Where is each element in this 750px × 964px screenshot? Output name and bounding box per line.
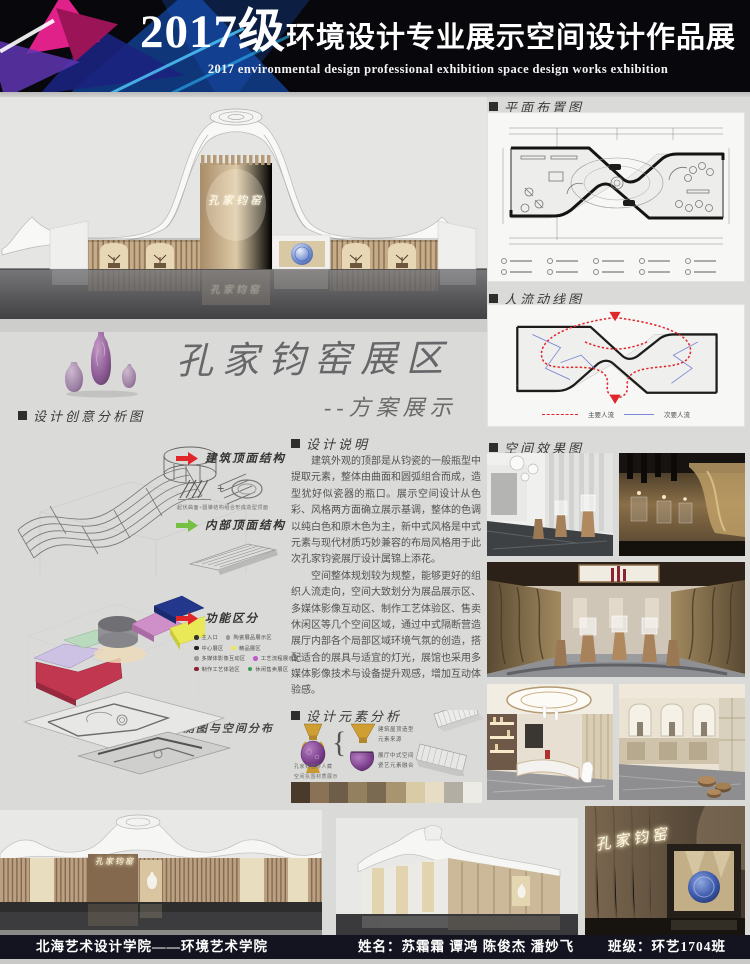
material-swatch (425, 782, 444, 803)
circulation-drawing (497, 310, 735, 404)
facade-sign: 孔家钧窑 (95, 856, 135, 867)
header-banner: 2017级环境设计专业展示空间设计作品展 2017 environmental … (0, 0, 750, 92)
floor-plan-legend (501, 258, 731, 275)
plan-legend-mark (547, 269, 593, 275)
plan-legend-mark (685, 269, 731, 275)
footer-school: 北海艺术设计学院——环境艺术学院 (36, 935, 268, 959)
red-arrow-icon (176, 452, 198, 465)
section-bullet (489, 102, 498, 111)
vases-image (58, 330, 146, 398)
red-arrow-icon (176, 612, 198, 625)
roof-fragment-images (404, 710, 484, 776)
render-main-hall (487, 562, 745, 677)
material-caption: 空间氛围材质展示 (294, 773, 338, 780)
plan-legend-mark (639, 269, 685, 275)
poster-board: 2017级环境设计专业展示空间设计作品展 2017 environmental … (0, 0, 750, 964)
secondary-flow-label: 次要人流 (664, 409, 690, 419)
floor-plan-panel (487, 112, 745, 282)
green-arrow-icon (176, 519, 198, 532)
zone-legend-item: 陶瓷展品展示区 (226, 634, 272, 641)
design-description-heading-text: 设计说明 (306, 434, 370, 453)
vase-neck-piece (348, 722, 378, 746)
zone-legend: 主入口 陶瓷展品展示区 中心展区 精品展区 多媒体影像互动区 工艺流程展示区 制… (194, 634, 300, 673)
plan-legend-mark (639, 258, 685, 264)
analysis-inner-label: 内部顶面结构 (205, 517, 286, 533)
footer-names: 姓名：苏霜霜 谭鸿 陈俊杰 潘妙飞 (358, 935, 574, 959)
project-title: 孔家钧窑展区 (176, 327, 477, 384)
render-gold-room (619, 453, 745, 556)
slat-lines-icon (178, 476, 212, 502)
render-signage-wall: 孔家钧窑 (585, 806, 745, 935)
zone-legend-item: 休闲售卖展区 (248, 666, 288, 673)
header-title-main: 环境设计专业展示空间设计作品展 (286, 14, 736, 56)
main-flow-label: 主要人流 (588, 409, 614, 419)
plan-legend-mark (685, 258, 731, 264)
hero-sign: 孔家钧窑 (208, 194, 264, 207)
roof-formula-graphic: + (178, 476, 265, 502)
plan-legend-mark (501, 269, 547, 275)
footer-bar: 北海艺术设计学院——环境艺术学院 姓名：苏霜霜 谭鸿 陈俊杰 潘妙飞 班级：环艺… (0, 935, 750, 959)
description-paragraph-2: 空间整体规划较为规整，能够更好的组织人流走向，空间大致划分为展品展示区、多媒体影… (291, 569, 481, 700)
section-bullet (489, 443, 498, 452)
material-swatch (329, 782, 348, 803)
material-swatch (348, 782, 367, 803)
ring-icon (229, 477, 265, 501)
material-swatch (367, 782, 386, 803)
plus-glyph: + (217, 481, 224, 497)
main-flow-line-sample (542, 414, 578, 415)
header-title: 2017级环境设计专业展示空间设计作品展 (140, 2, 736, 62)
footer-class: 班级：环艺1704班 (608, 935, 726, 959)
render-facade-corner (336, 818, 578, 935)
zone-legend-item: 主入口 (194, 634, 218, 641)
render-reception (487, 684, 613, 800)
ceiling-slab-graphic (184, 540, 280, 578)
circulation-legend: 主要人流 次要人流 (487, 409, 745, 419)
section-bullet (489, 294, 498, 303)
plan-legend-mark (593, 269, 639, 275)
bottom-strip (0, 959, 750, 964)
render-gallery-room (619, 684, 745, 800)
brace-glyph: { (332, 726, 346, 760)
section-bullet (18, 411, 27, 420)
hero-building-render: 孔家钧窑 孔家钧窑 (0, 97, 487, 332)
secondary-flow-line-sample (624, 414, 654, 415)
zone-legend-item: 多媒体影像互动区 (194, 655, 245, 662)
analysis-item-roof: 建筑顶面结构 (176, 450, 286, 466)
material-swatch (386, 782, 405, 803)
design-description-body: 建筑外观的顶部是从钧瓷的一般瓶型中提取元素，整体由曲面和圆弧组合而成，造型犹好似… (291, 454, 481, 700)
hero-sign-reflection: 孔家钧窑 (210, 284, 262, 296)
circulation-panel: 主要人流 次要人流 (487, 304, 745, 427)
material-swatch (463, 782, 482, 803)
analysis-item-inner: 内部顶面结构 (176, 517, 286, 533)
plan-legend-mark (501, 258, 547, 264)
header-title-year: 2017级 (140, 2, 286, 62)
roof-formula-caption: 起伏曲面+圆锥结构组合形成造型顶面 (177, 504, 287, 511)
creative-analysis-heading-text: 设计创意分析图 (33, 406, 145, 425)
render-facade-front: 孔家钧窑 (0, 810, 322, 935)
project-subtitle: --方案展示 (324, 390, 457, 422)
axonometric-plan (18, 678, 248, 806)
material-swatches (291, 782, 482, 803)
plan-legend-mark (547, 258, 593, 264)
section-bullet (291, 711, 300, 720)
material-swatch (406, 782, 425, 803)
vase-body-piece (348, 748, 376, 774)
plan-legend-mark (593, 258, 639, 264)
header-subtitle-en: 2017 environmental design professional e… (140, 62, 736, 77)
description-paragraph-1: 建筑外观的顶部是从钧瓷的一般瓶型中提取元素，整体由曲面和圆弧组合而成，造型犹好似… (291, 454, 481, 569)
analysis-item-zones: 功能区分 (176, 610, 259, 626)
zone-legend-item: 精品展区 (231, 645, 260, 652)
analysis-roof-label: 建筑顶面结构 (205, 450, 286, 466)
zone-legend-item: 中心展区 (194, 645, 223, 652)
zone-legend-item: 制作工艺体验区 (194, 666, 240, 673)
section-bullet (291, 439, 300, 448)
vase-caption: 孔家钧窑传人藏 (294, 763, 333, 770)
design-description-heading: 设计说明 (291, 434, 370, 453)
material-swatch (444, 782, 463, 803)
material-swatch (310, 782, 329, 803)
creative-analysis-heading: 设计创意分析图 (18, 406, 145, 425)
render-corridor (487, 453, 613, 556)
material-swatch (291, 782, 310, 803)
floor-plan-drawing (497, 120, 735, 252)
analysis-zones-label: 功能区分 (205, 610, 259, 626)
